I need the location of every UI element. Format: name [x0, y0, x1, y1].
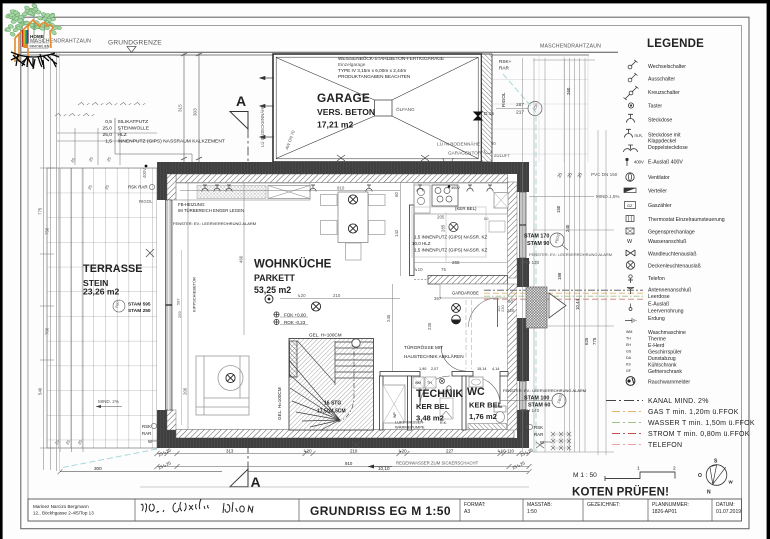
- svg-text:GARAGE: GARAGE: [317, 91, 370, 105]
- svg-text:Waschmaschine: Waschmaschine: [648, 330, 686, 336]
- svg-text:303: 303: [193, 108, 198, 116]
- svg-text:240: 240: [565, 224, 570, 232]
- svg-text:0,5: 0,5: [105, 119, 112, 125]
- svg-text:315: 315: [178, 104, 183, 112]
- svg-text:400V: 400V: [634, 160, 644, 165]
- svg-text:STAM 170: STAM 170: [524, 234, 549, 240]
- svg-text:205: 205: [437, 215, 445, 220]
- svg-text:PLANNUMMER:: PLANNUMMER:: [652, 502, 689, 508]
- svg-text:Gegensprechanlage: Gegensprechanlage: [648, 230, 695, 236]
- svg-text:17,21 m2: 17,21 m2: [317, 120, 354, 130]
- svg-text:FPH 140: FPH 140: [521, 408, 540, 413]
- svg-text:367: 367: [434, 296, 442, 301]
- svg-text:Thermostat Einzelraumsteuerung: Thermostat Einzelraumsteuerung: [648, 217, 725, 223]
- svg-text:230: 230: [500, 305, 505, 312]
- svg-text:1,5 INNENPUTZ (GIPS) NASSR. K: 1,5 INNENPUTZ (GIPS) NASSR. KZ: [414, 248, 488, 253]
- svg-text:WASSER T min. 1,50m ü.FFOK: WASSER T min. 1,50m ü.FFOK: [648, 420, 755, 427]
- svg-text:GARAGENTOR: GARAGENTOR: [448, 151, 482, 156]
- svg-text:WEISSENBÖCK-STAHLBETON-FERTIGG: WEISSENBÖCK-STAHLBETON-FERTIGGARAGE: [338, 55, 444, 61]
- svg-text:GARDAROBE: GARDAROBE: [452, 291, 479, 296]
- svg-text:DA: DA: [626, 356, 632, 360]
- svg-text:REGENWASSER ZUM SICKERSCHACHT: REGENWASSER ZUM SICKERSCHACHT: [396, 461, 479, 466]
- svg-text:RAR: RAR: [499, 66, 510, 71]
- svg-text:260: 260: [566, 87, 571, 95]
- svg-text:Verteiler: Verteiler: [648, 189, 667, 195]
- svg-text:400V: 400V: [142, 168, 147, 178]
- svg-text:15,14: 15,14: [477, 367, 487, 371]
- svg-text:235: 235: [427, 322, 432, 330]
- svg-text:M 1 : 50: M 1 : 50: [573, 472, 597, 479]
- svg-text:Therme: Therme: [648, 336, 666, 342]
- svg-text:STAM 90: STAM 90: [527, 241, 549, 247]
- svg-text:Leerdose: Leerdose: [648, 294, 670, 300]
- svg-text:D.15: D.15: [484, 111, 494, 116]
- svg-text:1: 1: [637, 466, 640, 472]
- svg-text:300: 300: [94, 466, 102, 471]
- svg-text:MASSTAB:: MASSTAB:: [527, 502, 552, 508]
- svg-text:E-Auslaß: E-Auslaß: [648, 302, 669, 308]
- svg-text:TH: TH: [427, 381, 432, 385]
- svg-text:TECHNIK: TECHNIK: [416, 388, 463, 400]
- svg-text:1,5: 1,5: [105, 139, 112, 145]
- svg-text:GEL. H=100CM: GEL. H=100CM: [277, 387, 282, 420]
- svg-text:775: 775: [592, 337, 597, 345]
- svg-text:Steckdose: Steckdose: [648, 118, 672, 124]
- svg-text:KOTEN PRÜFEN!: KOTEN PRÜFEN!: [572, 486, 669, 499]
- svg-text:WM: WM: [626, 330, 632, 334]
- svg-text:FPH 130: FPH 130: [521, 260, 540, 265]
- svg-text:KS: KS: [626, 363, 631, 367]
- svg-text:E-Herd: E-Herd: [648, 343, 665, 349]
- svg-text:FB-HEIZUNG:: FB-HEIZUNG:: [178, 202, 205, 207]
- svg-text:Wechselschalter: Wechselschalter: [648, 64, 686, 70]
- svg-text:HAUSTECHNIK ABKLÄREN: HAUSTECHNIK ABKLÄREN: [404, 353, 464, 359]
- svg-text:625: 625: [584, 337, 589, 345]
- svg-text:1,90: 1,90: [419, 367, 426, 371]
- svg-text:KER BEL: KER BEL: [416, 402, 450, 411]
- svg-text:3,48 m2: 3,48 m2: [416, 414, 444, 423]
- svg-text:Kreuzschalter: Kreuzschalter: [648, 90, 680, 96]
- svg-text:1,5 INNENPUTZ (GIPS) NASSR. K: 1,5 INNENPUTZ (GIPS) NASSR. KZ: [414, 235, 488, 240]
- svg-text:TÜRGRÖSSE MIT: TÜRGRÖSSE MIT: [404, 344, 443, 350]
- svg-text:↳10: ↳10: [414, 267, 423, 272]
- svg-text:GEL. H=100CM: GEL. H=100CM: [309, 333, 342, 338]
- svg-text:HOME: HOME: [30, 34, 44, 39]
- svg-text:259: 259: [177, 311, 182, 318]
- svg-text:150: 150: [556, 205, 561, 213]
- svg-text:GAS T min. 1,20m ü.FFOK: GAS T min. 1,20m ü.FFOK: [648, 409, 739, 416]
- svg-text:ÖLFANG: ÖLFANG: [396, 106, 415, 112]
- svg-text:210: 210: [333, 293, 341, 298]
- svg-text:Wasseranschluß: Wasseranschluß: [648, 239, 686, 245]
- svg-text:1826-AP01: 1826-AP01: [652, 509, 677, 515]
- svg-text:90: 90: [508, 299, 513, 304]
- svg-text:FOK +0,00: FOK +0,00: [284, 313, 306, 318]
- svg-text:GS: GS: [626, 350, 632, 354]
- svg-text:HLZ: HLZ: [118, 132, 127, 138]
- svg-text:LÜ IN DECKENNÄHE: LÜ IN DECKENNÄHE: [260, 105, 265, 147]
- svg-text:TELEFON: TELEFON: [648, 442, 682, 449]
- svg-text:Taster: Taster: [648, 104, 662, 110]
- svg-text:FENSTER: EV.: LEERVERROHRUNG A: FENSTER: EV.: LEERVERROHRUNG ALARM: [173, 221, 256, 226]
- svg-text:17,5/24,5CM: 17,5/24,5CM: [317, 409, 346, 415]
- svg-text:↳20: ↳20: [297, 293, 306, 298]
- svg-text:23,26 m2: 23,26 m2: [83, 287, 120, 297]
- svg-text:01.07.2019: 01.07.2019: [716, 509, 741, 515]
- svg-text:Antennenanschluß: Antennenanschluß: [648, 288, 691, 294]
- svg-text:245: 245: [386, 314, 391, 322]
- svg-text:Rauchwarnmelder: Rauchwarnmelder: [648, 380, 690, 386]
- svg-text:460: 460: [239, 255, 244, 263]
- svg-text:587: 587: [176, 298, 181, 305]
- svg-text:STAM 250: STAM 250: [128, 308, 151, 314]
- svg-text:RAR: RAR: [142, 431, 151, 436]
- svg-text:285: 285: [441, 224, 446, 232]
- svg-text:10,0 HLZ: 10,0 HLZ: [412, 241, 431, 246]
- svg-text:1,76 m2: 1,76 m2: [469, 412, 497, 421]
- svg-text:188: 188: [557, 272, 562, 280]
- svg-text:↳10: ↳10: [497, 449, 506, 454]
- svg-text:MIND. 2%: MIND. 2%: [98, 399, 119, 404]
- svg-text:142: 142: [394, 229, 399, 237]
- svg-text:Wandleuchtenauslaß: Wandleuchtenauslaß: [648, 252, 697, 258]
- svg-text:RSK+: RSK+: [499, 59, 512, 64]
- svg-text:200: 200: [183, 387, 188, 395]
- svg-text:RSK RAR: RSK RAR: [128, 185, 148, 190]
- svg-text:Erdung: Erdung: [648, 316, 665, 322]
- svg-text:N: N: [707, 490, 711, 496]
- svg-text:60: 60: [394, 192, 399, 197]
- svg-text:RSK: RSK: [142, 424, 151, 429]
- svg-text:WC: WC: [467, 386, 485, 398]
- svg-text:217: 217: [516, 110, 524, 115]
- svg-text:WÄRMEPUMPE: WÄRMEPUMPE: [395, 425, 425, 430]
- svg-text:53,25 m2: 53,25 m2: [254, 285, 291, 295]
- svg-text:Marinez Narcizo Bergmann: Marinez Narcizo Bergmann: [33, 504, 89, 509]
- svg-text:287: 287: [516, 102, 524, 107]
- svg-text:LEGENDE: LEGENDE: [647, 38, 704, 50]
- svg-text:750: 750: [45, 227, 50, 235]
- svg-text:910: 910: [337, 186, 345, 191]
- svg-text:10,44: 10,44: [575, 298, 580, 310]
- svg-text:75: 75: [441, 267, 446, 272]
- svg-text:KIPPSCHIEBETÜR: KIPPSCHIEBETÜR: [192, 277, 197, 312]
- svg-text:25,0: 25,0: [102, 126, 112, 132]
- svg-text:FENSTER: EV.: LEERVERROHRUNG A: FENSTER: EV.: LEERVERROHRUNG ALARM: [503, 388, 586, 393]
- svg-text:313: 313: [226, 449, 234, 454]
- svg-text:WM: WM: [415, 381, 421, 385]
- svg-text:1:50: 1:50: [527, 509, 537, 515]
- svg-text:↳20: ↳20: [398, 449, 407, 454]
- svg-text:KER BEL: KER BEL: [469, 401, 503, 410]
- svg-text:MIND.1,5%: MIND.1,5%: [596, 194, 620, 199]
- svg-text:227: 227: [446, 449, 454, 454]
- svg-text:Dunstabzug: Dunstabzug: [648, 356, 676, 362]
- svg-text:PVC DN 150: PVC DN 150: [591, 172, 618, 177]
- svg-text:STROM T min. 0,80m ü.FFOK: STROM T min. 0,80m ü.FFOK: [648, 431, 750, 438]
- svg-text:Einzelgarage: Einzelgarage: [338, 62, 366, 67]
- svg-text:Kühlschrank: Kühlschrank: [648, 362, 677, 368]
- svg-text:Doppelsteckdose: Doppelsteckdose: [648, 145, 688, 151]
- svg-text:775: 775: [38, 207, 43, 215]
- svg-text:FORMAT:: FORMAT:: [464, 502, 486, 508]
- svg-text:Ventilator: Ventilator: [648, 175, 670, 181]
- svg-text:(KER BEL): (KER BEL): [455, 206, 477, 211]
- svg-text:Deckenleuchtenauslaß: Deckenleuchtenauslaß: [648, 264, 701, 270]
- svg-text:Gaszähler: Gaszähler: [648, 203, 672, 209]
- svg-text:GEZEICHNET:: GEZEICHNET:: [587, 502, 620, 508]
- svg-text:A: A: [251, 474, 261, 490]
- svg-text:SILIKATPUTZ: SILIKATPUTZ: [118, 119, 149, 125]
- svg-text:MASCHENDRAHTZAUN: MASCHENDRAHTZAUN: [540, 44, 601, 50]
- svg-text:FENSTER: EV.: LEERVERROHRUNG A: FENSTER: EV.: LEERVERROHRUNG ALARM: [529, 252, 612, 257]
- svg-text:ROK -0,23: ROK -0,23: [284, 320, 306, 325]
- svg-text:E-Auslaß 400V: E-Auslaß 400V: [648, 160, 683, 166]
- svg-text:TH: TH: [626, 337, 631, 341]
- svg-text:220: 220: [507, 308, 515, 313]
- svg-text:GZ: GZ: [627, 204, 633, 208]
- svg-text:EH: EH: [626, 343, 631, 347]
- svg-text:700: 700: [45, 327, 50, 335]
- svg-text:910: 910: [345, 461, 353, 466]
- svg-text:TERRASSE: TERRASSE: [83, 263, 143, 275]
- svg-text:GRUNDRISS EG M 1:50: GRUNDRISS EG M 1:50: [310, 504, 451, 518]
- svg-text:RAR: RAR: [534, 432, 543, 437]
- svg-text:A: A: [236, 93, 246, 109]
- svg-text:PRODUKTANGABEN BEACHTEN: PRODUKTANGABEN BEACHTEN: [338, 74, 410, 79]
- svg-text:GF: GF: [626, 369, 632, 373]
- svg-text:Klappdeckel: Klappdeckel: [648, 139, 676, 145]
- svg-text:10,10: 10,10: [378, 466, 390, 471]
- svg-text:Ausschalter: Ausschalter: [648, 77, 675, 83]
- svg-text:IMMOBILIEN: IMMOBILIEN: [30, 44, 51, 48]
- svg-text:540: 540: [38, 387, 43, 395]
- svg-text:90: 90: [491, 141, 496, 146]
- svg-text:A3: A3: [464, 509, 470, 515]
- svg-text:2,07: 2,07: [431, 367, 438, 371]
- svg-text:Geschirrspüler: Geschirrspüler: [648, 349, 682, 355]
- svg-text:4,14: 4,14: [492, 367, 499, 371]
- svg-text:12., Böckhgasse 2-4/5/Top 13: 12., Böckhgasse 2-4/5/Top 13: [33, 511, 94, 516]
- svg-text:Gefrierschrank: Gefrierschrank: [648, 369, 682, 375]
- svg-text:16 STG: 16 STG: [324, 401, 341, 407]
- svg-text:m.K.: m.K.: [635, 133, 644, 138]
- svg-text:110: 110: [507, 449, 515, 454]
- svg-text:STEINWOLLE: STEINWOLLE: [118, 126, 150, 132]
- svg-text:O: O: [698, 473, 702, 479]
- svg-text:25,0: 25,0: [102, 132, 112, 138]
- svg-text:60: 60: [484, 216, 489, 221]
- svg-text:LÜ IN BODENNÄHE: LÜ IN BODENNÄHE: [437, 141, 480, 147]
- svg-text:TYPE IV 3,15m x 6,00m x 2,44m: TYPE IV 3,15m x 6,00m x 2,44m: [338, 68, 406, 73]
- svg-text:GRUNDGRENZE: GRUNDGRENZE: [108, 40, 162, 47]
- svg-text:RSK: RSK: [534, 425, 543, 430]
- svg-text:2: 2: [673, 466, 676, 472]
- svg-text:Leerverrohrung: Leerverrohrung: [648, 309, 684, 315]
- svg-text:RIGOL: RIGOL: [501, 92, 506, 107]
- svg-text:WP: WP: [393, 412, 397, 418]
- svg-text:RIGOL: RIGOL: [139, 199, 153, 204]
- svg-text:DATUM:: DATUM:: [716, 502, 735, 508]
- svg-text:210: 210: [350, 449, 358, 454]
- svg-text:WOHNKÜCHE: WOHNKÜCHE: [254, 258, 332, 271]
- svg-text:Telefon: Telefon: [648, 276, 665, 282]
- svg-text:VERS. BETON: VERS. BETON: [317, 107, 375, 117]
- svg-text:400V: 400V: [451, 186, 460, 190]
- svg-text:INNENPUTZ (GIPS) NASSRAUM KALK: INNENPUTZ (GIPS) NASSRAUM KALKZEMENT: [118, 139, 225, 145]
- svg-text:KANAL MIND. 2%: KANAL MIND. 2%: [648, 398, 709, 405]
- svg-text:PARKETT: PARKETT: [254, 273, 296, 283]
- svg-text:STAM 595: STAM 595: [128, 302, 151, 308]
- svg-text:↳20: ↳20: [303, 449, 312, 454]
- svg-text:IM TÜRBEREICH ENGER LEGEN: IM TÜRBEREICH ENGER LEGEN: [178, 208, 244, 213]
